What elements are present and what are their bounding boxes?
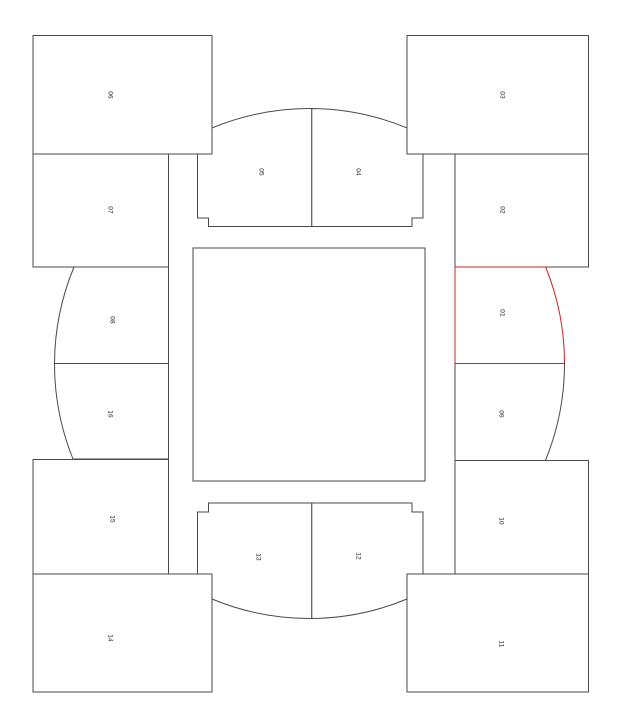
seating-map-svg: 06 07 08 16 15 14 03 02: [0, 0, 619, 724]
section-10-shape: [455, 461, 589, 575]
section-16[interactable]: 16: [54, 364, 168, 460]
section-03-shape: [407, 36, 589, 155]
section-13[interactable]: 13: [198, 503, 312, 619]
section-07[interactable]: 07: [33, 154, 169, 267]
section-13-label: 13: [255, 553, 262, 561]
section-12[interactable]: 12: [312, 503, 423, 619]
section-10-label: 10: [498, 517, 505, 525]
section-16-label: 16: [107, 410, 114, 418]
section-08[interactable]: 08: [55, 267, 169, 364]
section-15[interactable]: 15: [33, 460, 169, 575]
section-04-label: 04: [355, 168, 362, 176]
section-07-label: 07: [107, 206, 114, 214]
map-lines: 06 07 08 16 15 14 03 02: [33, 36, 589, 693]
section-02[interactable]: 02: [455, 154, 589, 267]
field: [193, 248, 425, 481]
section-15-label: 15: [109, 515, 116, 523]
section-09-shape: [455, 364, 565, 461]
seating-map-page: 06 07 08 16 15 14 03 02: [0, 0, 619, 724]
section-12-shape: [312, 503, 423, 619]
section-11-label: 11: [498, 640, 505, 647]
section-01-shape-highlighted: [455, 267, 565, 364]
section-05-label: 05: [258, 168, 265, 176]
section-03[interactable]: 03: [407, 36, 589, 155]
section-06-label: 06: [107, 91, 114, 99]
section-06[interactable]: 06: [33, 36, 212, 155]
section-05[interactable]: 05: [198, 108, 312, 226]
section-14[interactable]: 14: [33, 574, 212, 692]
section-05-shape: [198, 108, 312, 226]
section-08-label: 08: [109, 316, 116, 324]
section-15-shape: [33, 460, 169, 575]
section-07-shape: [33, 154, 169, 267]
section-11[interactable]: 11: [407, 574, 589, 692]
section-09-label: 09: [498, 410, 505, 418]
section-11-shape: [407, 574, 589, 692]
section-01[interactable]: 01: [455, 267, 565, 364]
section-01-label: 01: [499, 309, 506, 317]
section-12-label: 12: [355, 552, 362, 560]
section-14-shape: [33, 574, 212, 692]
section-14-label: 14: [107, 634, 114, 642]
section-04-shape: [312, 109, 423, 227]
section-09[interactable]: 09: [455, 364, 565, 461]
section-10[interactable]: 10: [455, 461, 589, 575]
field-outline: [193, 248, 425, 481]
section-03-label: 03: [499, 91, 506, 99]
section-04[interactable]: 04: [312, 109, 423, 227]
section-02-shape: [455, 154, 589, 267]
section-06-shape: [33, 36, 212, 155]
section-02-label: 02: [499, 206, 506, 214]
